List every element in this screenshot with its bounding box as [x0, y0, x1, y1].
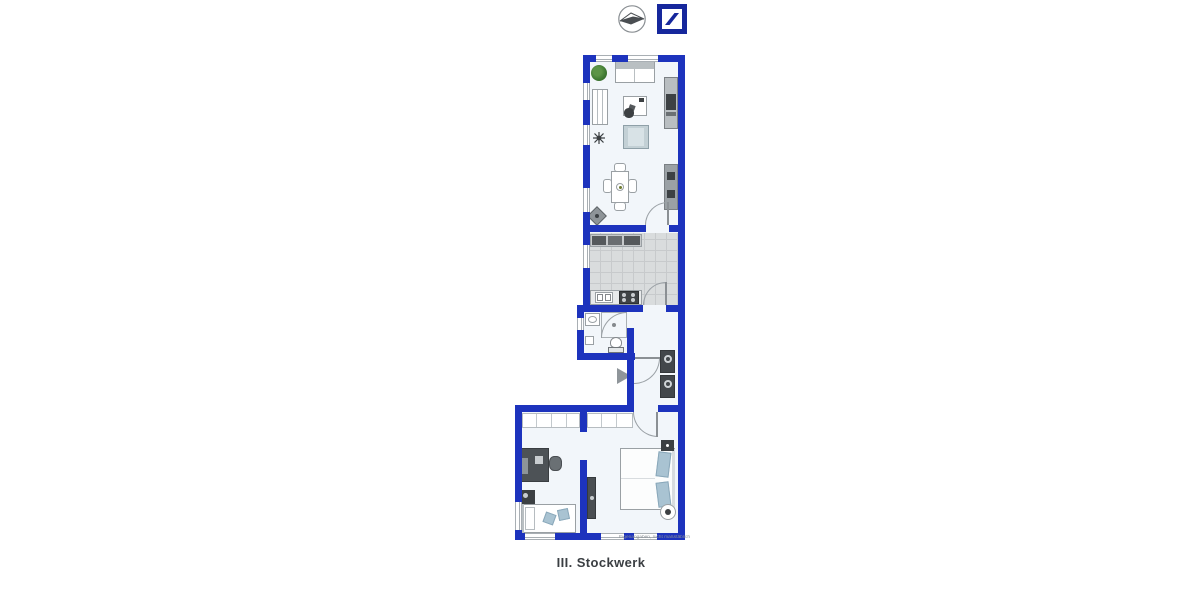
closet-divider: [551, 414, 552, 427]
double-bed-headboard: [672, 449, 675, 509]
plant: [591, 65, 607, 81]
shower-drain: [612, 323, 616, 327]
window: [577, 318, 584, 330]
closet-divider: [536, 414, 537, 427]
bookshelf-line: [602, 90, 603, 124]
partition-wall: [580, 412, 587, 432]
floorplan-page: { "header": { "compass_icon": "north-com…: [0, 0, 1200, 600]
door-gap-floor: [643, 305, 666, 312]
sofa-backrest: [616, 62, 654, 69]
window: [583, 125, 590, 145]
living-room-door-leaf: [667, 202, 669, 225]
sofa-seam: [634, 69, 635, 82]
closet-divider: [601, 414, 602, 427]
sideboard-knob: [590, 496, 594, 500]
desk-chair: [624, 108, 634, 118]
washbasin-bowl: [588, 316, 597, 323]
kitchen-door-leaf: [665, 282, 667, 305]
window: [525, 533, 555, 540]
wall: [666, 305, 678, 312]
kitchen-cabinet: [592, 236, 606, 245]
window: [515, 502, 522, 530]
wall: [577, 305, 584, 360]
washer-door: [664, 355, 672, 363]
kitchen-cabinet: [624, 236, 640, 245]
dining-chair: [614, 202, 626, 211]
bookshelf: [592, 89, 608, 125]
partition-wall: [580, 460, 587, 533]
wall: [627, 328, 634, 412]
window: [596, 55, 612, 62]
sink-basin: [597, 294, 603, 301]
wall: [577, 305, 643, 312]
duvet-fold: [621, 478, 655, 479]
desk-laptop: [639, 98, 644, 102]
window: [628, 55, 658, 62]
fan-hub: [665, 509, 671, 515]
bookshelf-line: [597, 90, 598, 124]
burner: [631, 293, 635, 297]
wall-tv-dot: [666, 444, 669, 447]
kitchen-cabinet: [608, 236, 622, 245]
closet-divider: [616, 414, 617, 427]
single-bed-pillow: [525, 507, 535, 530]
burner: [622, 293, 626, 297]
cushion: [557, 508, 570, 521]
deutsche-bank-logo-icon: [657, 4, 687, 34]
wardrobe-drawer: [667, 172, 675, 180]
ceiling-fan: [593, 131, 605, 143]
door-gap-floor: [646, 225, 669, 232]
lamp: [523, 493, 528, 498]
wardrobe-drawer: [667, 190, 675, 198]
floor-caption: III. Stockwerk: [511, 555, 691, 570]
dryer-door: [664, 380, 672, 388]
wall: [669, 225, 678, 232]
wall: [658, 405, 678, 412]
bedroom-door-leaf: [656, 412, 658, 437]
armchair-cushion: [628, 128, 644, 146]
closet-divider: [566, 414, 567, 427]
wardrobe-shelf: [666, 112, 676, 116]
plate-food: [619, 186, 622, 189]
burner: [631, 298, 635, 302]
wall: [515, 405, 633, 412]
dining-chair: [628, 179, 637, 193]
window: [583, 188, 590, 212]
floorplan-drawing: [511, 52, 691, 544]
sink-basin: [605, 294, 611, 301]
door-gap-floor: [633, 405, 658, 412]
desk-paper: [535, 456, 543, 464]
wall: [678, 55, 685, 540]
bedroom-desk-chair: [549, 456, 562, 471]
window: [583, 245, 590, 268]
wall: [583, 225, 646, 232]
entrance-door-leaf: [634, 357, 660, 359]
wardrobe-dark-panel: [666, 94, 676, 110]
closet-row: [587, 413, 633, 428]
plan-disclaimer: Eigenangaben, nicht maßstäblich: [586, 535, 690, 540]
burner: [622, 298, 626, 302]
speaker-cone: [595, 214, 599, 218]
bath-cabinet: [585, 336, 594, 345]
window: [583, 83, 590, 100]
north-compass-icon: [617, 4, 647, 34]
desk-monitor: [522, 458, 528, 474]
